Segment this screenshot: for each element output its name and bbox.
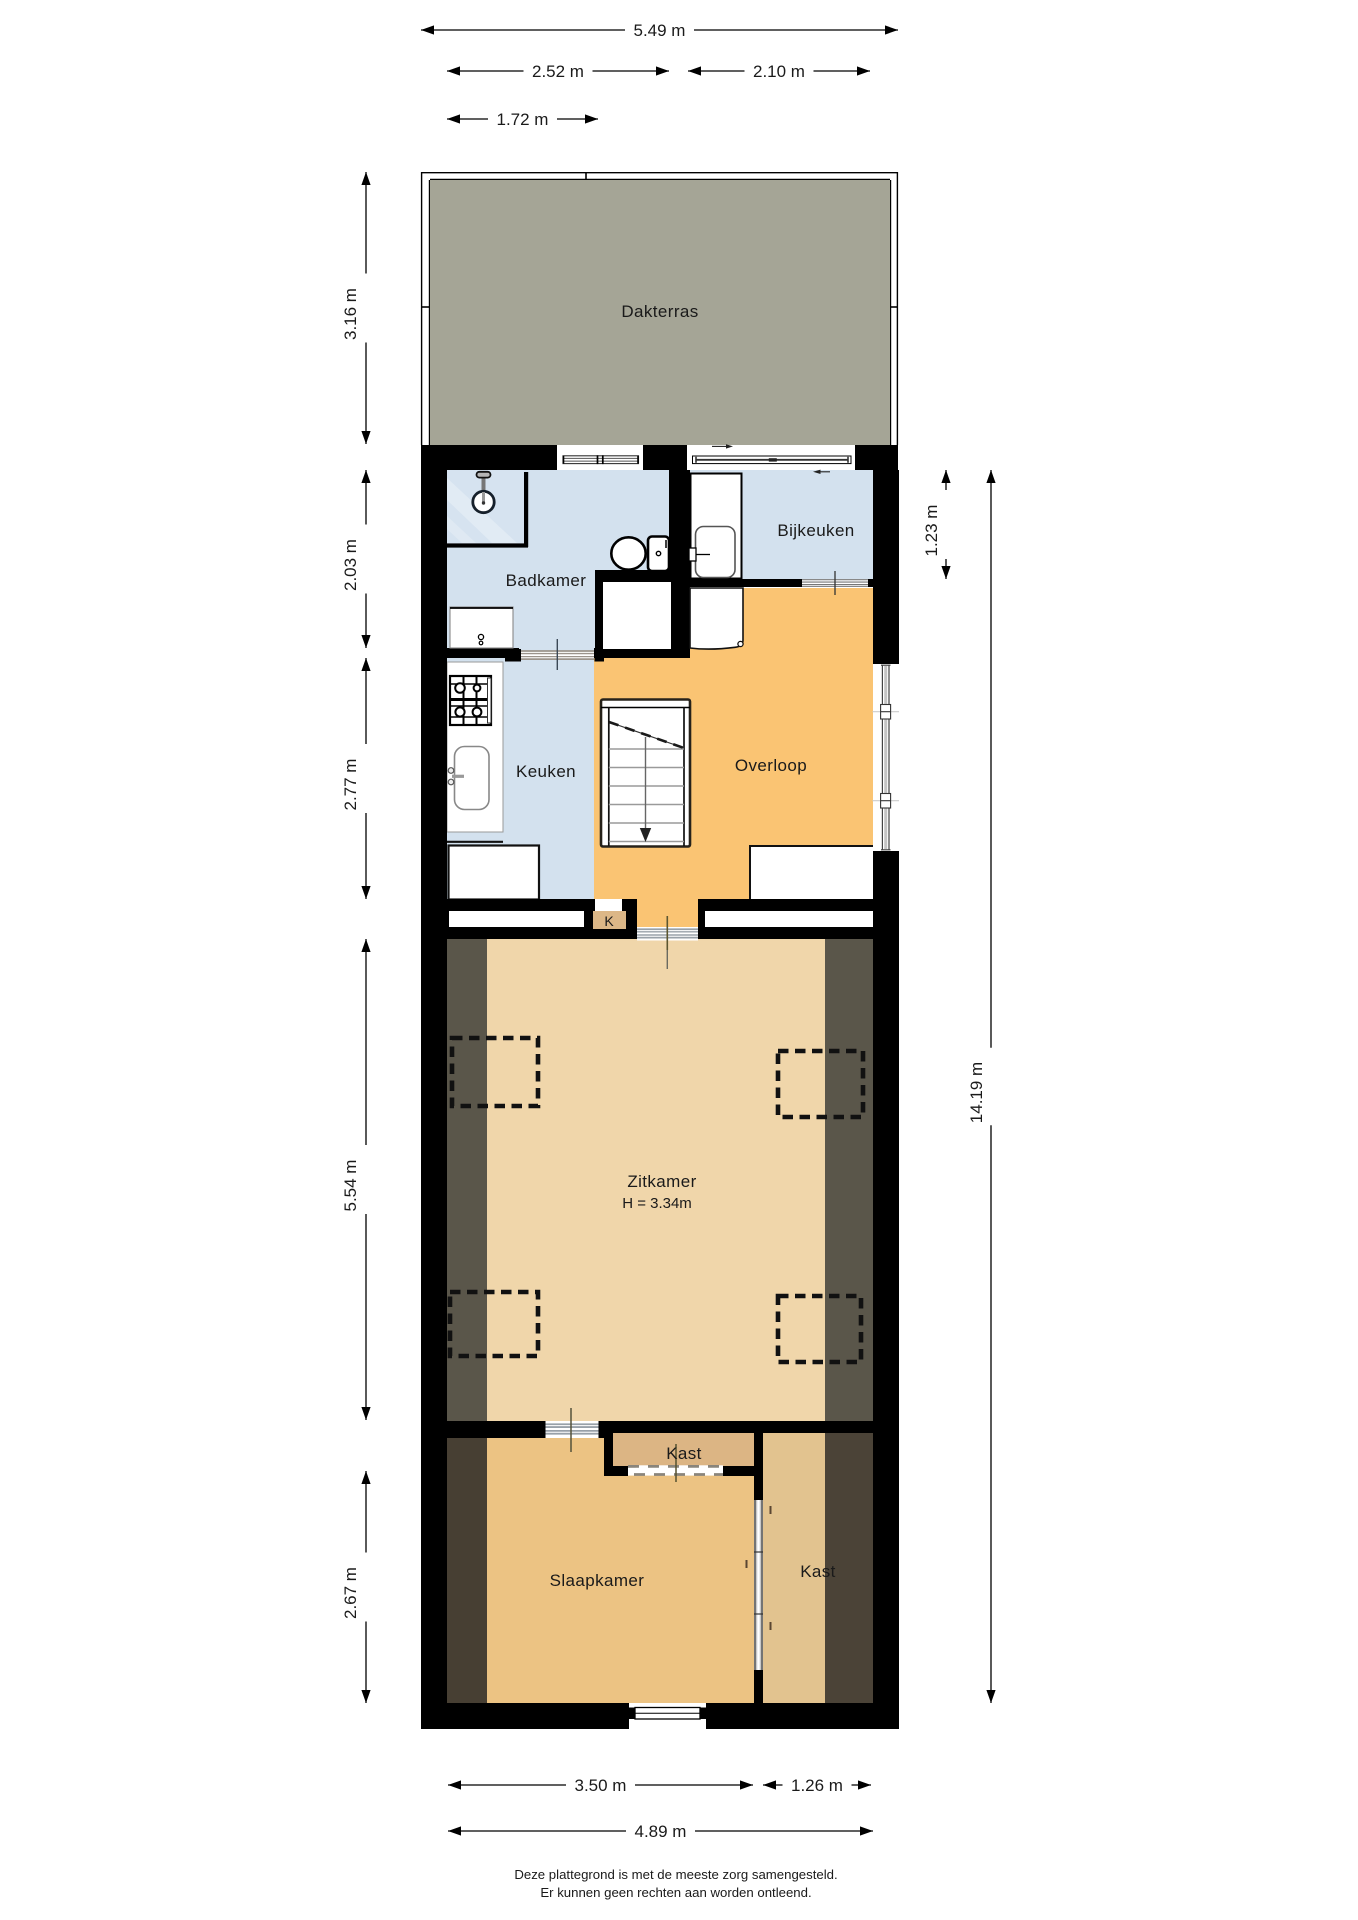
svg-text:5.54 m: 5.54 m <box>341 1160 360 1212</box>
svg-text:Keuken: Keuken <box>516 762 576 781</box>
svg-text:Slaapkamer: Slaapkamer <box>550 1571 645 1590</box>
svg-text:Kast: Kast <box>800 1562 836 1581</box>
svg-text:2.77 m: 2.77 m <box>341 759 360 811</box>
svg-text:1.72 m: 1.72 m <box>497 110 549 129</box>
svg-text:14.19 m: 14.19 m <box>967 1062 986 1123</box>
svg-text:K: K <box>604 913 614 929</box>
svg-text:H = 3.34m: H = 3.34m <box>622 1195 692 1212</box>
svg-text:Deze plattegrond is met de mee: Deze plattegrond is met de meeste zorg s… <box>514 1867 837 1882</box>
svg-text:2.67 m: 2.67 m <box>341 1567 360 1619</box>
svg-text:2.10 m: 2.10 m <box>753 62 805 81</box>
svg-text:Kast: Kast <box>666 1444 702 1463</box>
svg-text:5.49 m: 5.49 m <box>634 21 686 40</box>
svg-text:Badkamer: Badkamer <box>506 571 587 590</box>
svg-text:1.23 m: 1.23 m <box>922 505 941 557</box>
svg-text:4.89 m: 4.89 m <box>635 1822 687 1841</box>
svg-text:Zitkamer: Zitkamer <box>627 1172 696 1191</box>
svg-text:3.16 m: 3.16 m <box>341 288 360 340</box>
svg-text:2.52 m: 2.52 m <box>532 62 584 81</box>
svg-text:2.03 m: 2.03 m <box>341 539 360 591</box>
svg-text:Bijkeuken: Bijkeuken <box>777 521 854 540</box>
svg-text:3.50 m: 3.50 m <box>575 1776 627 1795</box>
svg-text:Er kunnen geen rechten aan wor: Er kunnen geen rechten aan worden ontlee… <box>540 1885 811 1900</box>
svg-text:1.26 m: 1.26 m <box>791 1776 843 1795</box>
svg-text:Overloop: Overloop <box>735 756 807 775</box>
svg-text:Dakterras: Dakterras <box>621 302 698 321</box>
